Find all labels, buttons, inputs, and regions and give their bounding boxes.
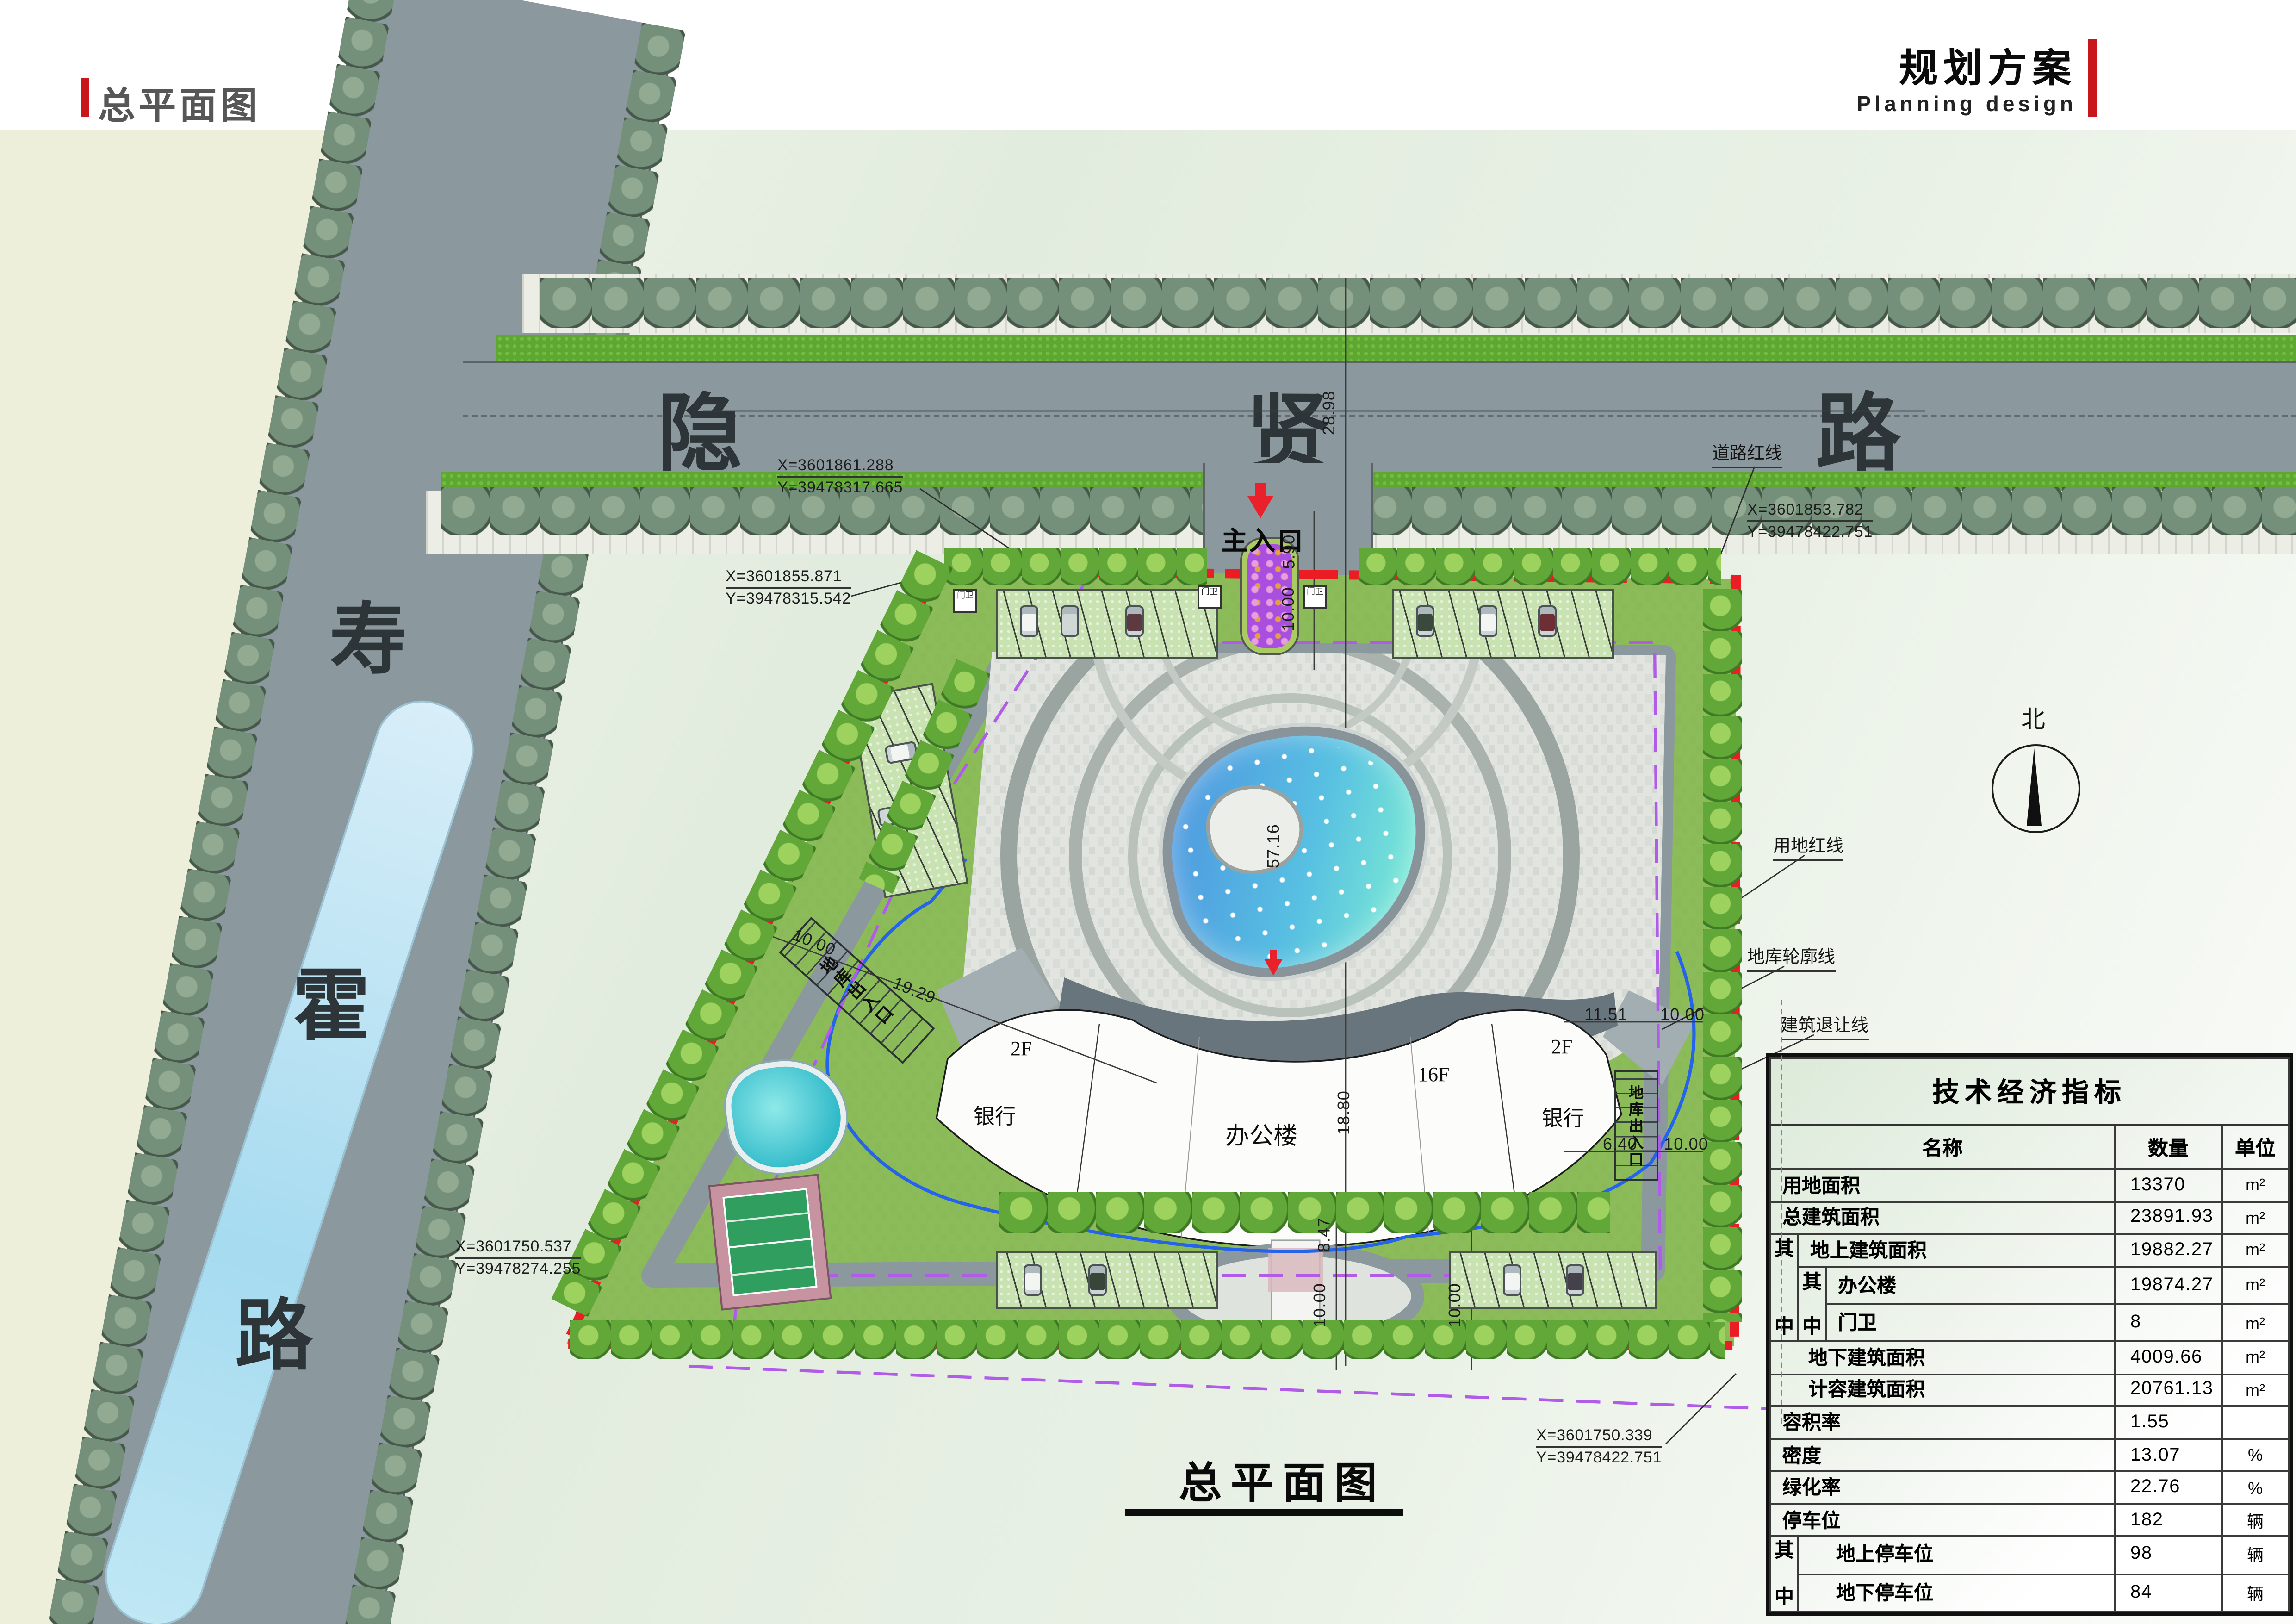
row-name: 门卫 [1826,1304,2115,1342]
sports-court [708,1174,832,1311]
bank-west-label: 银行 [974,1101,1016,1131]
merge-top: 其 [1771,1235,1797,1263]
row-name: 总建筑面积 [1770,1201,2115,1234]
merge-bottom: 中 [1799,1313,1825,1341]
row-unit: 辆 [2222,1504,2289,1536]
row-unit: m² [2222,1234,2289,1266]
car [1125,605,1144,637]
col-header-qty: 数量 [2115,1125,2222,1169]
indicator-table: 技术经济指标 名称 数量 单位 用地面积13370m² 总建筑面积23891.9… [1766,1053,2293,1616]
gatehouse-box: 门卫 [1198,585,1222,609]
dim-south-b: 10.00 [1446,1283,1464,1327]
coord-sw-site: X=3601750.537 Y=39478274.255 [455,1237,581,1278]
car [1538,605,1557,637]
col-header-unit: 单位 [2222,1125,2289,1169]
north-arrow-needle [2026,748,2041,826]
merge-top: 其 [1771,1537,1797,1565]
row-name: 地下建筑面积 [1770,1342,2115,1374]
row-name: 办公楼 [1826,1266,2115,1304]
sports-court-surface [722,1188,818,1296]
row-unit: m² [2222,1304,2289,1342]
page-title: 总平面图 [98,76,261,130]
merge-bottom: 中 [1771,1583,1797,1611]
gatehouse-box: 门卫 [1303,585,1327,609]
car [1416,605,1434,637]
coord-se-site-y: Y=39478422.751 [1536,1448,1662,1466]
drawing-title: 总平面图 [1179,1448,1386,1511]
row-qty: 98 [2115,1536,2222,1574]
car [1503,1264,1521,1296]
coord-nw-site: X=3601855.871 Y=39478315.542 [726,566,851,608]
garage-ramp-east: 地库出入口 [1614,1070,1658,1181]
dim-south-walk: 8.47 [1315,1218,1333,1252]
merge-bottom: 中 [1771,1313,1797,1341]
dim-south-a: 10.00 [1310,1283,1329,1327]
row-unit: m² [2222,1342,2289,1374]
site-tree-row-south [570,1320,1725,1359]
row-unit: m² [2222,1266,2289,1304]
header-right-subtitle: Planning design [1851,94,2077,117]
row-name: 停车位 [1770,1504,2115,1536]
header-right-accent-bar [2088,39,2096,117]
merge-cell-parking: 其中 [1770,1536,1798,1612]
dim-entry-a: 5.90 [1279,535,1298,569]
row-qty: 1.55 [2115,1406,2222,1439]
dim-plaza: 57.16 [1264,824,1283,868]
indicator-table-grid: 技术经济指标 名称 数量 单位 用地面积13370m² 总建筑面积23891.9… [1769,1057,2290,1612]
south-lawn-trees [999,1192,1610,1233]
garage-ramp-east-label: 地库出入口 [1626,1084,1646,1167]
gatehouse-box: 门卫 [953,589,977,613]
merge-top: 其 [1799,1267,1825,1295]
coord-nw-site-y: Y=39478315.542 [726,589,851,607]
row-unit: % [2222,1439,2289,1471]
row-qty: 19882.27 [2115,1234,2222,1266]
basement-outline-purple-table-overlay [1781,1000,1782,1424]
site-red-line-label: 用地红线 [1773,831,1843,861]
row-qty: 84 [2115,1574,2222,1612]
coord-nw-road: X=3601861.288 Y=39478317.665 [777,455,903,497]
dim-east-a: 11.51 [1584,1005,1627,1024]
row-unit: m² [2222,1201,2289,1234]
dim-east-d: 10.00 [1664,1135,1708,1153]
car [1566,1264,1584,1296]
header-right-title: 规划方案 [1892,39,2077,94]
dim-east-c: 6.40 [1603,1135,1638,1153]
site-tree-row-east [1703,589,1742,1322]
road-red-line-label: 道路红线 [1712,439,1782,468]
row-unit: m² [2222,1169,2289,1201]
row-name: 地上停车位 [1798,1536,2115,1574]
coord-se-site-x: X=3601750.339 [1536,1425,1662,1448]
row-qty: 13.07 [2115,1439,2222,1471]
car [1088,1264,1107,1296]
row-name: 容积率 [1770,1406,2115,1439]
row-name: 密度 [1770,1439,2115,1471]
main-entrance-arrow [1247,496,1273,518]
table-title: 技术经济指标 [1770,1058,2289,1125]
car [1061,605,1079,637]
coord-nw-site-x: X=3601855.871 [726,566,851,589]
coord-nw-road-y: Y=39478317.665 [777,478,903,496]
row-name: 用地面积 [1770,1169,2115,1201]
office-label: 办公楼 [1225,1116,1297,1151]
row-name: 地下停车位 [1798,1574,2115,1612]
coord-sw-site-y: Y=39478274.255 [455,1259,581,1277]
row-name: 地上建筑面积 [1798,1234,2115,1266]
row-unit: 辆 [2222,1574,2289,1612]
coord-ne-road-x: X=3601853.782 [1747,500,1873,522]
row-qty: 20761.13 [2115,1374,2222,1406]
coord-ne-road-y: Y=39478422.751 [1747,522,1873,541]
coord-sw-site-x: X=3601750.537 [455,1237,581,1259]
dim-building: 18.80 [1334,1090,1353,1135]
row-qty: 4009.66 [2115,1342,2222,1374]
coord-ne-road: X=3601853.782 Y=39478422.751 [1747,500,1873,541]
row-qty: 19874.27 [2115,1266,2222,1304]
setback-line-label: 建筑退让线 [1781,1011,1868,1040]
bank-east-floors: 2F [1551,1037,1573,1059]
car [1020,605,1038,637]
dim-entry-b: 10.00 [1279,587,1297,631]
drawing-title-underline [1125,1509,1403,1515]
col-header-name: 名称 [1770,1125,2115,1169]
merge-cell-outer: 其中 [1770,1234,1798,1341]
site-tree-row-north-east [1359,548,1721,585]
row-unit: % [2222,1471,2289,1504]
dim-east-b: 10.00 [1660,1005,1705,1024]
bank-east-label: 银行 [1542,1103,1584,1133]
building-entrance-arrow [1264,959,1283,976]
coord-nw-road-x: X=3601861.288 [777,455,903,478]
site-tree-row-north-west [944,548,1207,585]
master-plan-sheet: 隐 贤 路 寿 霍 路 [0,0,2296,1624]
row-qty: 182 [2115,1504,2222,1536]
row-qty: 22.76 [2115,1471,2222,1504]
row-name: 计容建筑面积 [1770,1374,2115,1406]
row-qty: 13370 [2115,1169,2222,1201]
bank-west-floors: 2F [1011,1039,1032,1061]
car [1479,605,1497,637]
car [1024,1264,1042,1296]
south-parking-east [1449,1251,1657,1309]
row-qty: 8 [2115,1304,2222,1342]
row-name: 绿化率 [1770,1471,2115,1504]
north-label: 北 [2021,700,2045,735]
basement-outline-label: 地库轮廓线 [1747,942,1835,972]
office-floors: 16F [1418,1064,1450,1087]
row-unit: m² [2222,1374,2289,1406]
row-qty: 23891.93 [2115,1201,2222,1234]
dim-road-width: 28.98 [1320,391,1338,435]
row-unit: 辆 [2222,1536,2289,1574]
coord-se-site: X=3601750.339 Y=39478422.751 [1536,1425,1662,1467]
header-left-accent-bar [81,78,89,117]
merge-cell-inner: 其中 [1798,1266,1826,1341]
row-unit [2222,1406,2289,1439]
